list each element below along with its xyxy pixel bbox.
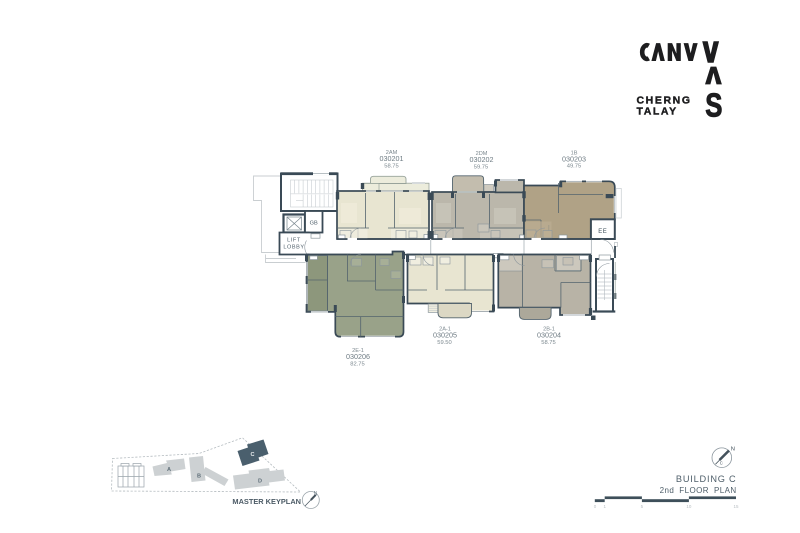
svg-text:EE: EE [598, 229, 607, 235]
svg-text:030205: 030205 [433, 331, 457, 340]
svg-text:030203: 030203 [562, 154, 586, 163]
svg-text:MASTER KEYPLAN: MASTER KEYPLAN [232, 497, 301, 506]
svg-text:030204: 030204 [537, 331, 561, 340]
svg-text:TALAY: TALAY [637, 106, 678, 118]
svg-text:S: S [705, 87, 722, 124]
svg-text:BUILDING C: BUILDING C [676, 474, 737, 484]
svg-text:030202: 030202 [470, 155, 494, 164]
svg-text:49.75: 49.75 [567, 164, 582, 170]
svg-text:59.50: 59.50 [437, 340, 452, 346]
svg-text:59.75: 59.75 [474, 164, 489, 170]
svg-text:LIFT: LIFT [287, 237, 301, 243]
svg-text:030201: 030201 [380, 154, 404, 163]
svg-text:030206: 030206 [346, 352, 370, 361]
svg-text:D: D [258, 479, 262, 485]
svg-text:LOBBY: LOBBY [283, 244, 304, 250]
svg-text:58.75: 58.75 [384, 163, 399, 169]
svg-text:2nd FLOOR PLAN: 2nd FLOOR PLAN [660, 486, 737, 495]
svg-text:A: A [167, 467, 171, 473]
svg-text:C: C [720, 461, 723, 466]
svg-text:82.75: 82.75 [350, 361, 365, 367]
svg-text:N: N [731, 447, 735, 453]
svg-text:15: 15 [733, 504, 739, 509]
svg-text:10: 10 [686, 504, 692, 509]
svg-text:C: C [250, 452, 254, 458]
svg-text:CHERNG: CHERNG [637, 94, 692, 106]
svg-text:B: B [197, 474, 201, 480]
svg-text:N: N [314, 491, 318, 497]
svg-text:GB: GB [310, 221, 318, 227]
svg-text:58.75: 58.75 [541, 340, 556, 346]
